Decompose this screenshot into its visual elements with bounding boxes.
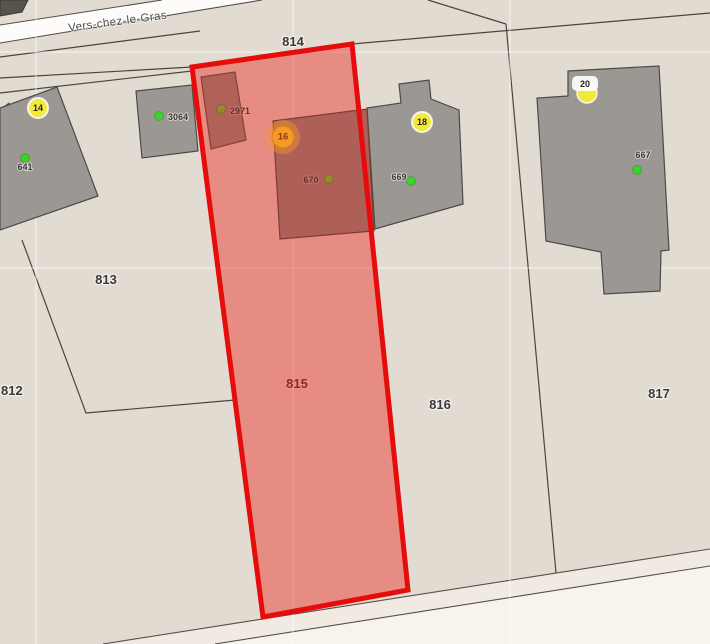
parcel-label-817: 817 — [648, 386, 670, 401]
building-label-641: 641 — [17, 162, 32, 172]
cadastral-map[interactable]: Vers-chez-le-Gras 814 813 812 815 816 81… — [0, 0, 710, 644]
marker-20-label: 20 — [580, 79, 590, 89]
parcel-label-816: 816 — [429, 397, 451, 412]
building-label-669: 669 — [391, 172, 406, 182]
entrance-dot-2971 — [217, 105, 226, 114]
marker-14-label: 14 — [33, 103, 43, 113]
entrance-dot-670 — [325, 175, 334, 184]
entrance-dot-669 — [407, 177, 416, 186]
parcel-label-815: 815 — [286, 376, 308, 391]
parcel-label-812: 812 — [1, 383, 23, 398]
parcel-label-814: 814 — [282, 34, 304, 49]
marker-18[interactable]: 18 — [412, 112, 432, 132]
entrance-dot-667 — [633, 166, 642, 175]
entrance-dot-3064 — [155, 112, 164, 121]
building-label-670: 670 — [303, 175, 318, 185]
marker-16-label: 16 — [278, 132, 289, 143]
marker-16[interactable]: 16 — [266, 120, 300, 154]
marker-14[interactable]: 14 — [28, 98, 48, 118]
building-label-2971: 2971 — [230, 106, 250, 116]
marker-18-label: 18 — [417, 117, 427, 127]
parcel-label-813: 813 — [95, 272, 117, 287]
building-label-667: 667 — [635, 150, 650, 160]
map-canvas[interactable]: Vers-chez-le-Gras 814 813 812 815 816 81… — [0, 0, 710, 644]
building-label-3064: 3064 — [168, 112, 188, 122]
